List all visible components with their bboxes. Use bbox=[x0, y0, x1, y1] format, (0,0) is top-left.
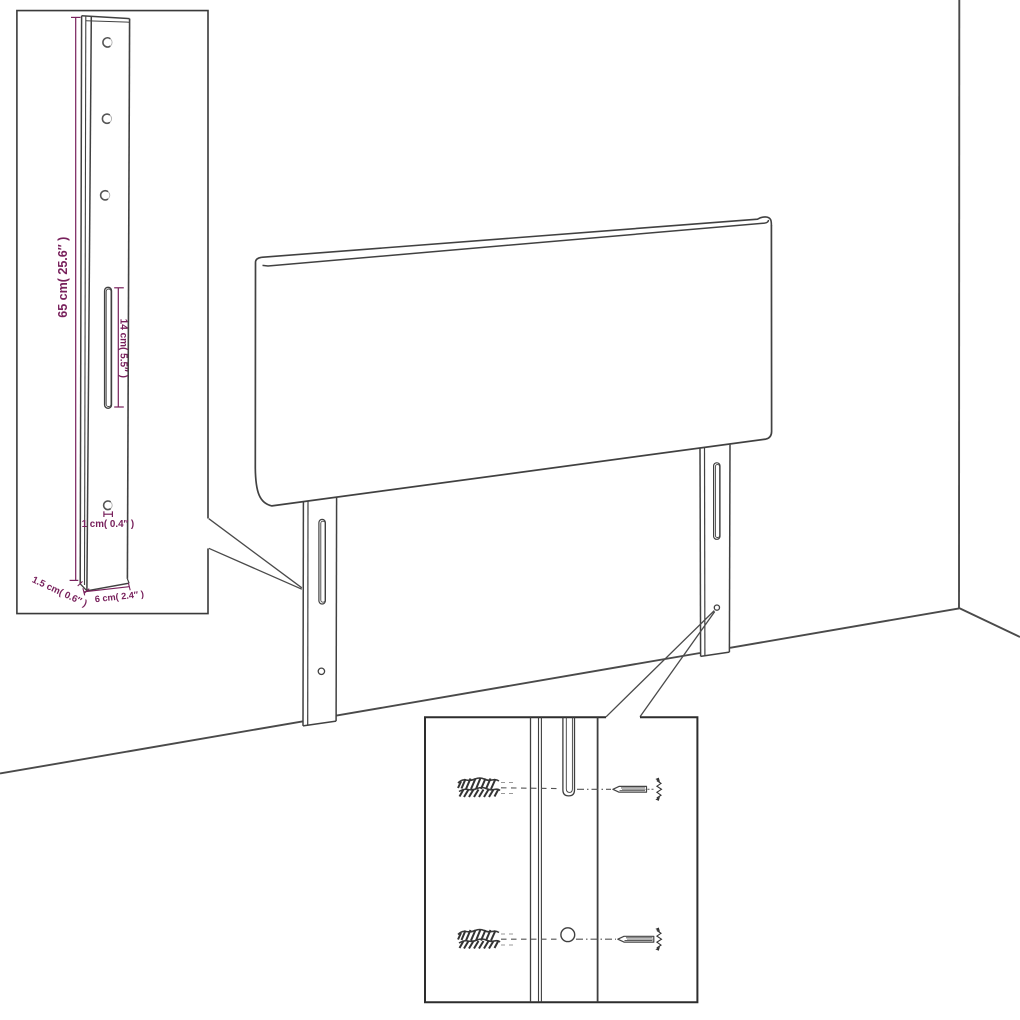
svg-text:14 cm( 5.5″ ): 14 cm( 5.5″ ) bbox=[117, 319, 128, 378]
svg-text:65 cm( 25.6″ ): 65 cm( 25.6″ ) bbox=[56, 237, 70, 318]
svg-text:1 cm( 0.4″ ): 1 cm( 0.4″ ) bbox=[82, 519, 135, 530]
